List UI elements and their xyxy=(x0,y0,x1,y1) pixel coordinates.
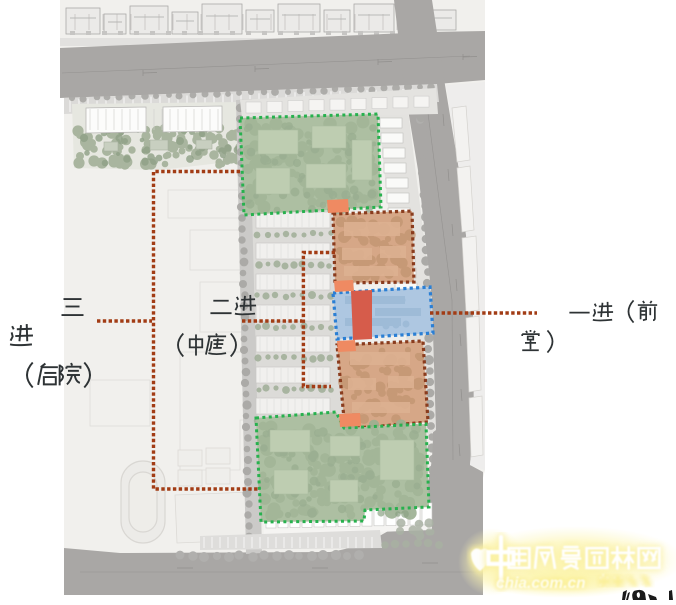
svg-text:chia.com.cn: chia.com.cn xyxy=(496,575,586,592)
